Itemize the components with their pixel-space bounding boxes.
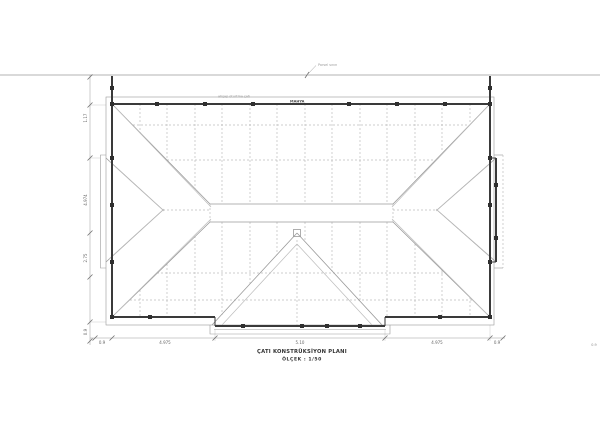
roof-notes: ahşap oturtma çatı MAHYA	[218, 95, 305, 104]
drawing-title: ÇATI KONSTRÜKSİYON PLANI	[257, 348, 347, 355]
dim-bottom-0: 0.9	[99, 340, 106, 345]
ridge-lines	[210, 204, 393, 222]
dim-bottom-1: 4.975	[159, 340, 171, 345]
title-block: ÇATI KONSTRÜKSİYON PLANI ÖLÇEK : 1/50	[257, 348, 347, 363]
left-bay-hips	[106, 158, 210, 262]
dimension-bottom: 0.9 4.975 5.10 4.975 0.9 0.9	[90, 325, 597, 347]
roof-plan-drawing: Parsel sınırı	[0, 0, 600, 425]
dim-left-1: 4.974	[83, 194, 88, 206]
wall-note: MAHYA	[290, 100, 305, 104]
walls	[112, 76, 496, 326]
dim-left-3: 0.9	[83, 328, 88, 335]
hip-lines	[112, 104, 490, 317]
porch-gable	[212, 230, 382, 326]
eave-outline	[101, 97, 504, 334]
purlin-lines	[130, 125, 473, 300]
dim-left-2: 2.75	[83, 253, 88, 262]
dim-left-0: 1.17	[83, 113, 88, 122]
right-bay-hips	[393, 158, 496, 262]
dim-bottom-4: 0.9	[494, 340, 501, 345]
rafter-lines	[140, 104, 470, 317]
drawing-scale: ÖLÇEK : 1/50	[282, 356, 322, 363]
roof-note: ahşap oturtma çatı	[218, 95, 250, 99]
dim-bottom-extra: 0.9	[591, 343, 596, 347]
drawing-sheet: Parsel sınırı	[0, 0, 600, 425]
dim-bottom-3: 4.975	[431, 340, 443, 345]
property-line-label: Parsel sınırı	[318, 63, 337, 67]
dimension-left: 1.17 4.974 2.75 0.9	[83, 75, 106, 346]
dim-bottom-2: 5.10	[296, 340, 305, 345]
